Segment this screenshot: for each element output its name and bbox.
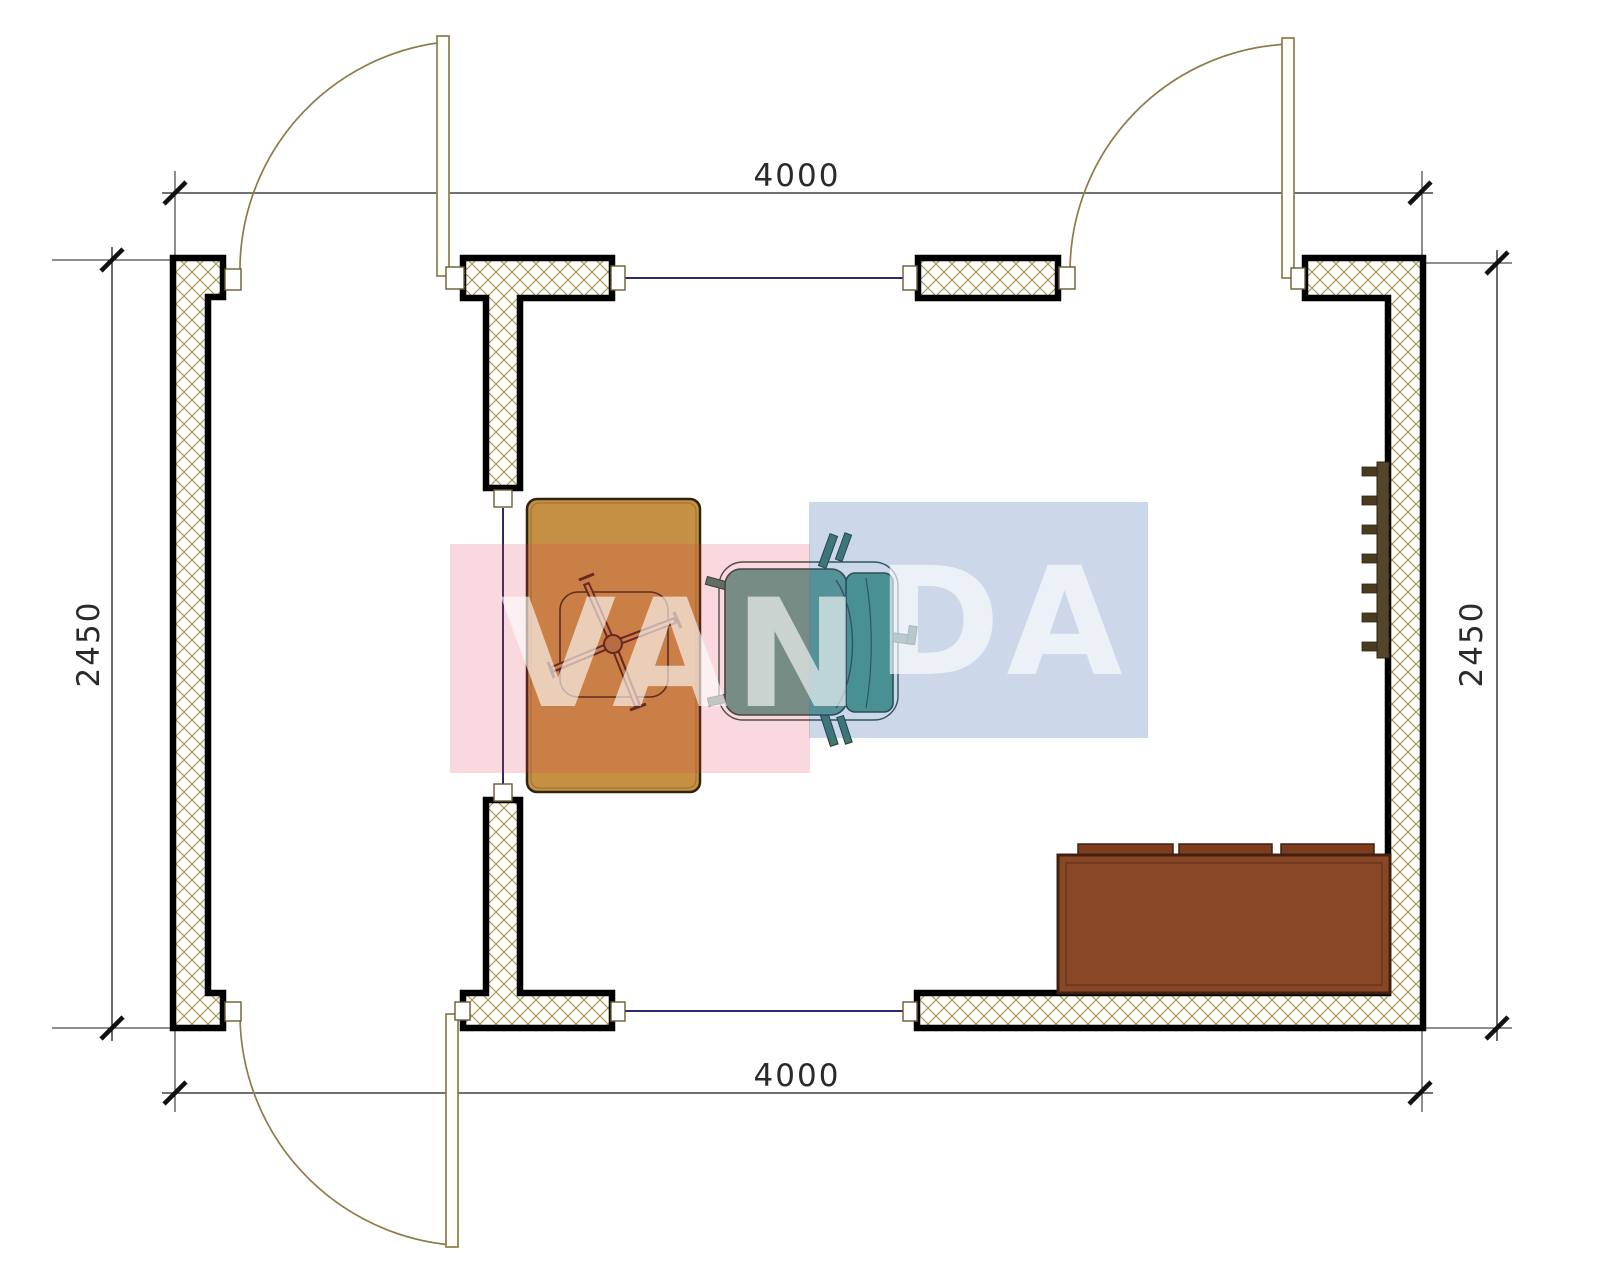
dim-text-bottom: 4000 <box>754 1058 841 1094</box>
watermark-text-right: DA <box>876 536 1129 710</box>
wall-bottom-left-partition <box>463 800 612 1028</box>
floor-plan-drawing: 4000 4000 2450 2450 <box>0 0 1600 1280</box>
door-bottom-left-leaf <box>446 1014 458 1247</box>
wall-top-left-partition <box>463 258 612 488</box>
radiator-fins <box>1362 467 1377 651</box>
door-top-right <box>1070 38 1294 278</box>
dim-text-left: 2450 <box>71 601 107 688</box>
door-top-left-leaf <box>437 36 449 276</box>
sofa-body <box>1058 855 1390 993</box>
dim-text-right: 2450 <box>1454 601 1490 688</box>
radiator <box>1362 462 1389 658</box>
floor-plan-page: 4000 4000 2450 2450 <box>0 0 1600 1280</box>
door-bottom-left <box>240 1014 458 1247</box>
radiator-bar <box>1377 462 1389 658</box>
sofa <box>1058 844 1390 993</box>
door-bottom-left-arc <box>240 1017 452 1245</box>
door-top-left-arc <box>240 42 445 276</box>
door-top-right-leaf <box>1282 38 1294 278</box>
door-top-left <box>240 36 449 276</box>
wall-left <box>173 258 223 1028</box>
wall-top-middle <box>918 258 1058 298</box>
dim-text-top: 4000 <box>754 158 841 194</box>
watermark-text-left: VAN <box>500 568 866 742</box>
door-top-right-arc <box>1070 44 1292 272</box>
